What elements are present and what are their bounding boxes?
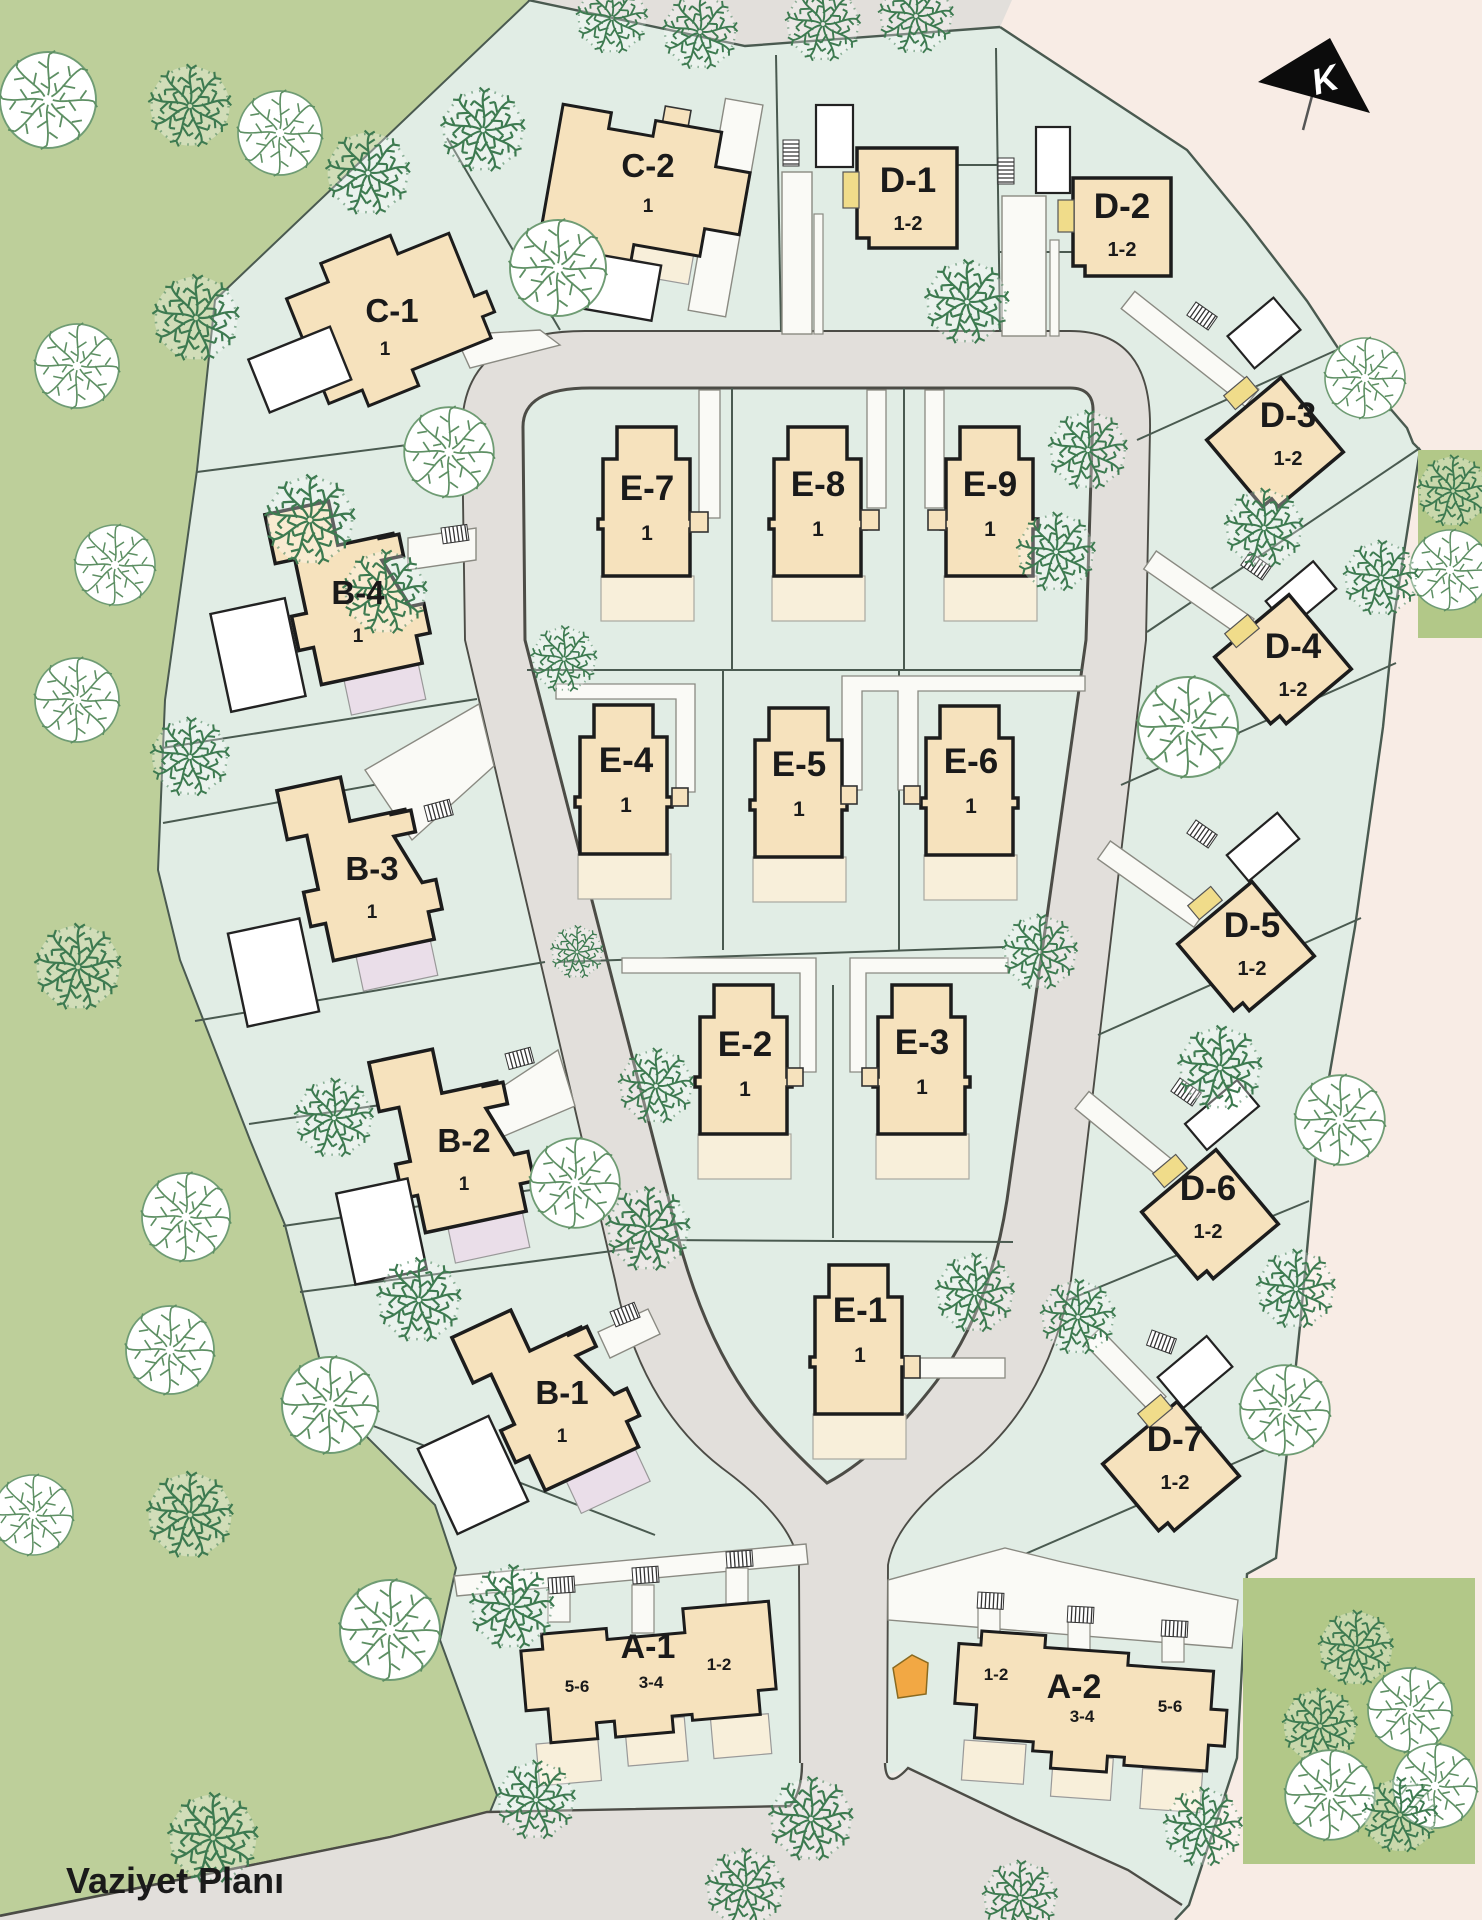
svg-text:1: 1 (739, 1078, 751, 1101)
svg-text:E-3: E-3 (895, 1023, 949, 1062)
svg-text:E-2: E-2 (718, 1025, 772, 1064)
svg-text:1: 1 (643, 196, 654, 217)
svg-text:D-2: D-2 (1094, 187, 1150, 226)
svg-text:D-1: D-1 (880, 161, 936, 200)
svg-text:1-2: 1-2 (984, 1665, 1009, 1684)
svg-text:1: 1 (459, 1174, 470, 1195)
svg-text:D-5: D-5 (1224, 906, 1280, 945)
svg-text:1: 1 (380, 339, 391, 360)
svg-text:1-2: 1-2 (1274, 448, 1303, 470)
svg-text:1: 1 (854, 1344, 866, 1367)
svg-text:1-2: 1-2 (1161, 1472, 1190, 1494)
svg-text:D-7: D-7 (1147, 1420, 1203, 1459)
svg-text:D-6: D-6 (1180, 1169, 1236, 1208)
svg-text:E-7: E-7 (620, 469, 674, 508)
svg-text:E-9: E-9 (963, 465, 1017, 504)
svg-text:E-8: E-8 (791, 465, 845, 504)
svg-text:1: 1 (557, 1426, 568, 1447)
svg-text:E-4: E-4 (599, 741, 654, 780)
svg-text:1: 1 (620, 794, 632, 817)
svg-text:A-2: A-2 (1047, 1668, 1102, 1706)
svg-text:A-1: A-1 (621, 1628, 676, 1666)
svg-text:B-1: B-1 (535, 1374, 588, 1411)
svg-text:E-6: E-6 (944, 742, 998, 781)
svg-text:1-2: 1-2 (1108, 239, 1137, 261)
svg-text:3-4: 3-4 (1070, 1707, 1095, 1726)
svg-text:C-2: C-2 (621, 147, 674, 184)
svg-text:C-1: C-1 (365, 292, 418, 329)
svg-text:1-2: 1-2 (1279, 679, 1308, 701)
svg-text:Vaziyet Planı: Vaziyet Planı (66, 1860, 284, 1901)
svg-text:1: 1 (353, 626, 364, 647)
svg-text:5-6: 5-6 (1158, 1697, 1183, 1716)
svg-text:1-2: 1-2 (707, 1655, 732, 1674)
svg-text:1-2: 1-2 (894, 213, 923, 235)
svg-text:B-4: B-4 (331, 574, 385, 611)
svg-text:1: 1 (916, 1076, 928, 1099)
svg-text:1: 1 (367, 902, 378, 923)
svg-text:1: 1 (641, 522, 653, 545)
svg-text:1-2: 1-2 (1238, 958, 1267, 980)
svg-text:B-2: B-2 (437, 1122, 490, 1159)
svg-text:D-3: D-3 (1260, 396, 1316, 435)
svg-text:D-4: D-4 (1265, 627, 1322, 666)
svg-text:1: 1 (812, 518, 824, 541)
svg-text:1: 1 (965, 795, 977, 818)
svg-text:E-5: E-5 (772, 745, 826, 784)
svg-text:1: 1 (984, 518, 996, 541)
svg-text:3-4: 3-4 (639, 1673, 664, 1692)
svg-text:B-3: B-3 (345, 850, 398, 887)
svg-text:5-6: 5-6 (565, 1677, 590, 1696)
svg-text:1-2: 1-2 (1194, 1221, 1223, 1243)
svg-text:1: 1 (793, 798, 805, 821)
svg-text:E-1: E-1 (833, 1291, 887, 1330)
